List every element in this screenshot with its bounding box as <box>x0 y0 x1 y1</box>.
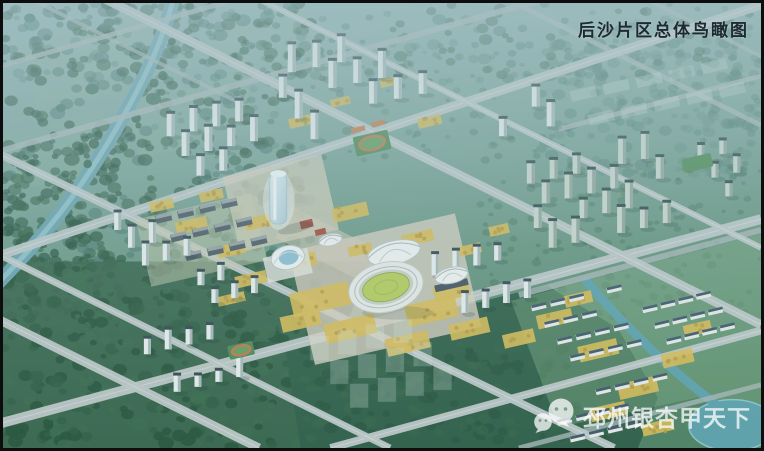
watermark: 邳州银杏甲天下 <box>532 396 751 436</box>
aerial-render: 后沙片区总体鸟瞰图 邳州银杏甲天下 <box>0 0 764 451</box>
image-title: 后沙片区总体鸟瞰图 <box>578 16 749 41</box>
watermark-text: 邳州银杏甲天下 <box>583 399 751 433</box>
wechat-icon <box>532 396 578 436</box>
masterplan-scene <box>3 3 761 448</box>
